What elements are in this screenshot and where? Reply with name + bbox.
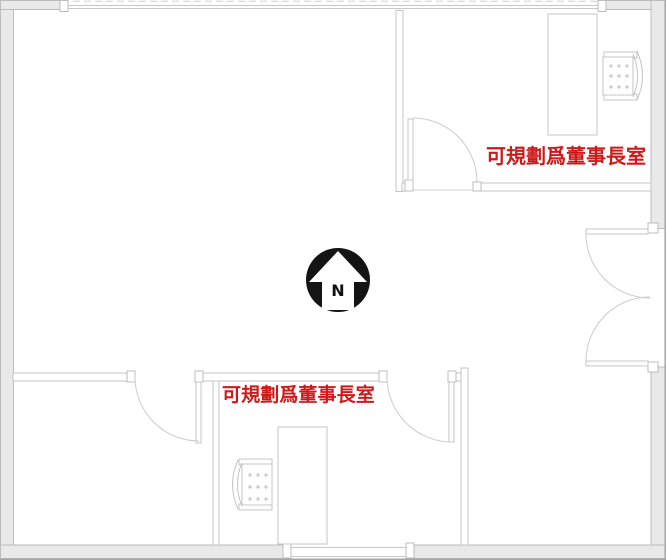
jamb-top-window-right	[598, 1, 606, 12]
floor-plan-drawing: N	[0, 0, 666, 560]
door-leaf-middle-room	[449, 382, 454, 442]
jamb-top-window-left	[60, 1, 68, 12]
jamb-door-middle-room-b	[448, 371, 456, 382]
jamb-door-middle-room-a	[379, 371, 387, 382]
compass-north-letter: N	[331, 281, 344, 300]
jamb-door-top-room-a	[405, 180, 413, 191]
chair-backrest-inner	[238, 463, 243, 506]
door-leaf-left-room	[196, 382, 201, 443]
wall-bottom-middle-room-right	[461, 368, 468, 545]
wall-bottom-right	[414, 545, 666, 559]
jamb-door-top-room-b	[473, 182, 481, 191]
floor-plan: N 可規劃爲董事長室 可規劃爲董事長室	[0, 0, 666, 560]
jamb-double-door-bottom	[648, 362, 658, 372]
office-chair-icon	[603, 51, 643, 100]
wall-right-lower	[651, 367, 666, 559]
door-leaf-double-bottom	[586, 361, 648, 366]
wall-left	[1, 1, 14, 560]
chair-backrest-inner	[633, 54, 638, 97]
furniture-top-right-room	[548, 14, 643, 135]
door-leaf-double-top	[586, 229, 648, 234]
north-arrow-compass-icon: N	[306, 248, 370, 312]
annotation-bottom-room: 可規劃爲董事長室	[222, 386, 375, 405]
door-arc-double-bottom	[586, 297, 650, 361]
desk-top-right	[548, 14, 597, 135]
door-arc-left-room	[135, 377, 199, 441]
jamb-door-left-room-a	[127, 371, 135, 382]
wall-top-right-room-bottom	[481, 183, 651, 191]
jamb-double-door-top	[648, 223, 658, 233]
door-arc-top-room	[413, 118, 477, 182]
wall-right-upper	[651, 1, 666, 229]
wall-bottom-rooms-1	[13, 373, 127, 381]
wall-top-left	[1, 1, 61, 10]
furniture-bottom-room	[233, 427, 328, 544]
office-chair-icon	[233, 459, 273, 510]
jamb-bottom-window-right	[406, 543, 414, 558]
wall-bottom-left	[1, 545, 284, 559]
jamb-door-left-room-b	[195, 371, 203, 382]
wall-bottom-middle-room-left	[213, 381, 219, 545]
wall-top-right-room-left	[396, 11, 403, 192]
door-arc-middle-room	[387, 377, 452, 442]
desk-bottom	[278, 427, 327, 544]
door-leaf-top-room	[408, 119, 413, 180]
annotation-top-right-room: 可規劃爲董事長室	[486, 147, 646, 167]
door-arc-double-top	[586, 234, 650, 298]
wall-bottom-rooms-2	[203, 373, 379, 381]
jamb-bottom-window-left	[283, 543, 291, 558]
